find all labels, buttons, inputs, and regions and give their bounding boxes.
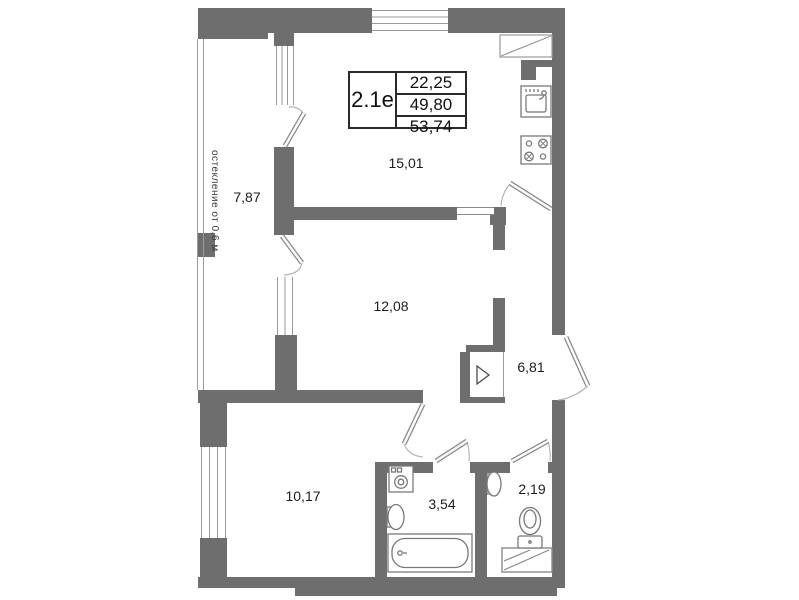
window [277,277,294,335]
door-wc [512,441,550,461]
room-area-wc: 2,19 [518,481,545,497]
door-entrance [558,337,588,400]
wall [274,33,294,46]
wall [198,390,423,403]
wall [552,400,565,588]
wall [375,473,387,577]
glazing-note: остекление от 0,6 м [209,150,220,270]
wall [552,33,565,335]
room-area-bedroom-1: 12,08 [373,298,408,314]
window [276,46,294,105]
bathtub-icon [388,534,472,572]
wall [466,345,505,352]
wall [375,462,433,473]
wall [493,225,505,250]
wall [460,397,505,403]
room-area-bedroom-2: 10,17 [285,488,320,504]
door-bedroom-2 [404,404,423,457]
door-bathroom [436,441,469,461]
half-wall [457,207,494,215]
wall [198,577,565,588]
unit-info-table: 2.1е 22,25 49,80 53,74 [348,71,467,129]
toilet-icon [518,508,542,549]
door-loggia-kitchen [285,107,304,146]
loggia-glazing-line [203,39,204,390]
floor-plan: 2.1е 22,25 49,80 53,74 15,01 7,87 12,08 … [0,0,799,600]
area-value: 49,80 [397,95,465,117]
door-loggia-bedroom [282,236,302,275]
vent-shaft-icon [500,35,552,57]
wall [470,462,510,473]
window [201,447,227,538]
room-area-bathroom: 3,54 [428,496,455,512]
wall [521,67,536,80]
window [372,10,448,31]
wall [275,335,297,400]
unit-number: 2.1е [350,73,397,127]
room-area-hall: 6,81 [517,359,544,375]
panel-niche-edge [503,352,504,397]
wall [475,473,487,577]
area-value: 22,25 [397,73,465,95]
wall [448,8,565,33]
wall [493,298,505,347]
vent-shaft-icon [502,548,552,572]
wall [295,588,557,596]
wall [521,60,552,67]
wall [548,462,565,473]
wall [200,538,227,577]
room-area-loggia: 7,87 [233,189,260,205]
stove-icon [521,136,551,164]
wall [294,207,457,220]
door-kitchen-hall [501,183,551,209]
wall [198,8,268,39]
wall [460,352,470,398]
area-value: 53,74 [397,117,465,137]
wall [268,8,372,33]
wall [274,147,294,235]
kitchen-sink-icon [521,86,551,117]
unit-areas: 22,25 49,80 53,74 [397,73,465,127]
loggia-glazing-line [197,39,198,390]
wash-basin-icon [487,472,501,496]
room-area-kitchen-living: 15,01 [388,155,423,171]
wash-basin-icon [387,505,404,530]
panel-marker-icon [477,366,489,384]
